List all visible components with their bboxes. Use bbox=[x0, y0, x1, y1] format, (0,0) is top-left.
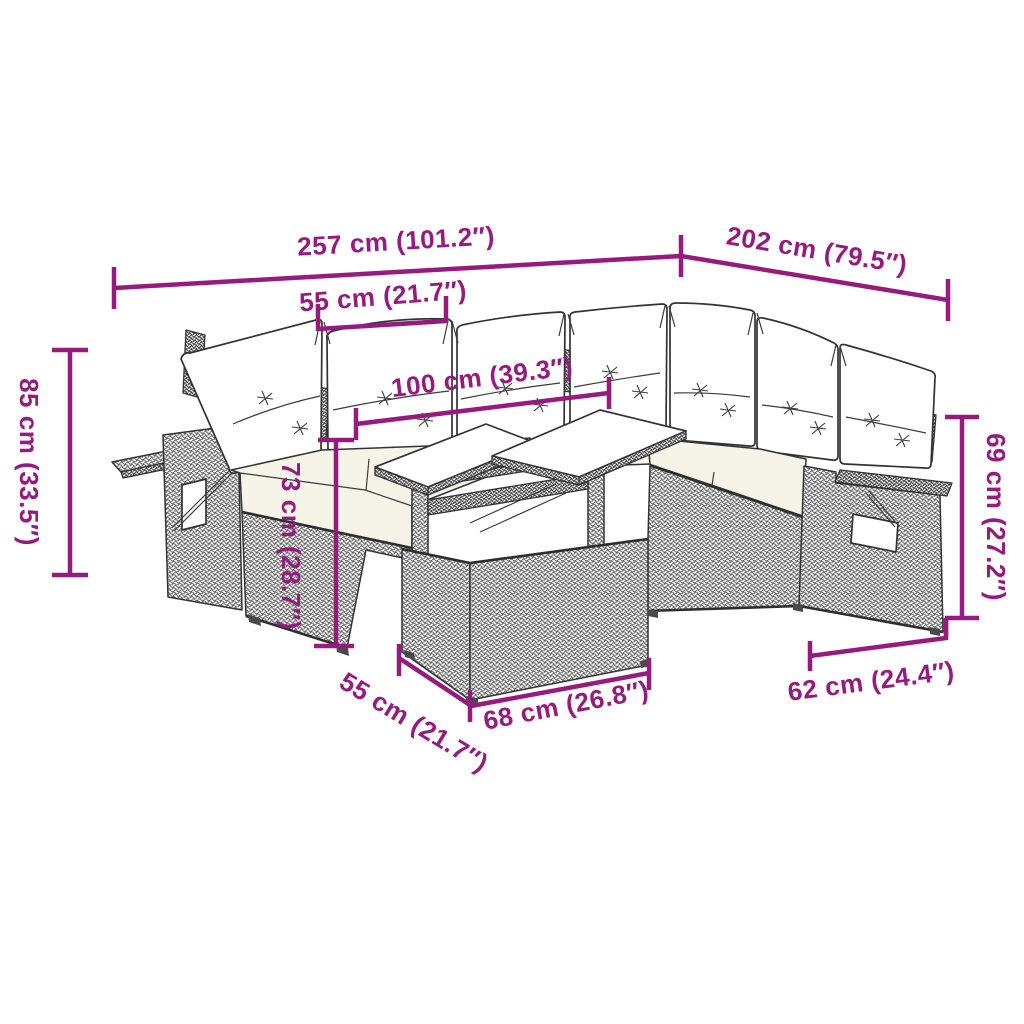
dim-label-table-height: 73 cm (28.7″) bbox=[276, 462, 306, 630]
dim-line-total-height bbox=[52, 350, 88, 575]
back-cushion bbox=[670, 303, 755, 446]
back-cushion bbox=[757, 318, 838, 460]
armrest-left-window bbox=[182, 479, 206, 530]
back-cushion bbox=[840, 344, 935, 468]
dim-label-total-height: 85 cm (33.5″) bbox=[14, 378, 44, 546]
dim-line-right-back-height bbox=[945, 417, 979, 640]
dim-label-seat-width: 55 cm (21.7″) bbox=[298, 274, 468, 317]
dim-label-overall-depth: 202 cm (79.5″) bbox=[724, 220, 909, 279]
product-dimension-diagram: 257 cm (101.2″) 202 cm (79.5″) 55 cm (21… bbox=[0, 0, 1024, 1024]
dim-label-overall-width: 257 cm (101.2″) bbox=[296, 220, 495, 261]
table bbox=[375, 410, 686, 700]
table-lower-box-left bbox=[402, 549, 470, 700]
dim-label-right-back-height: 69 cm (27.2″) bbox=[981, 433, 1011, 601]
dimension-diagram-svg: 257 cm (101.2″) 202 cm (79.5″) 55 cm (21… bbox=[0, 0, 1024, 1024]
